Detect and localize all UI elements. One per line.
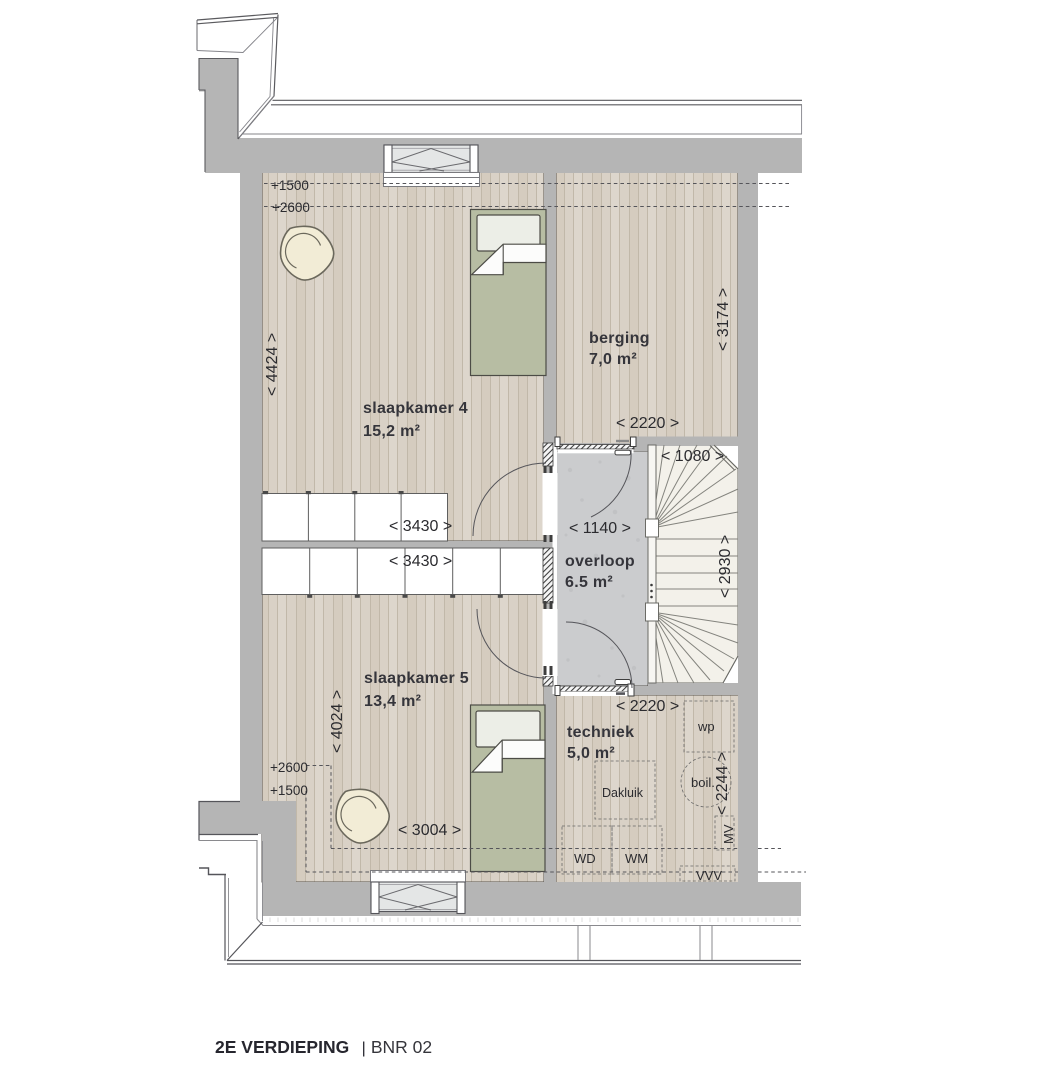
svg-text:< 4024 >: < 4024 >: [329, 690, 346, 753]
svg-text:2E VERDIEPING |BNR 02: 2E VERDIEPING |BNR 02: [215, 1037, 432, 1057]
svg-text:WD: WD: [574, 851, 596, 866]
svg-text:< 2930 >: < 2930 >: [717, 535, 734, 598]
svg-text:13,4 m²: 13,4 m²: [364, 693, 421, 710]
svg-text:Dakluik: Dakluik: [602, 786, 644, 800]
svg-text:MV: MV: [721, 824, 736, 844]
svg-text:+2600: +2600: [270, 760, 308, 775]
svg-text:< 4424 >: < 4424 >: [264, 333, 281, 396]
svg-text:berging: berging: [589, 330, 650, 347]
svg-text:7,0 m²: 7,0 m²: [589, 351, 637, 368]
svg-text:< 3430 >: < 3430 >: [389, 518, 452, 535]
svg-text:wp: wp: [697, 719, 715, 734]
svg-text:techniek: techniek: [567, 724, 634, 741]
svg-text:< 3174 >: < 3174 >: [715, 288, 732, 351]
svg-text:+2600: +2600: [272, 200, 310, 215]
svg-text:6.5 m²: 6.5 m²: [565, 574, 613, 591]
svg-text:< 1080 >: < 1080 >: [661, 448, 724, 465]
svg-text:< 3004 >: < 3004 >: [398, 822, 461, 839]
svg-text:slaapkamer 5: slaapkamer 5: [364, 670, 469, 687]
svg-text:slaapkamer 4: slaapkamer 4: [363, 400, 468, 417]
svg-text:< 2220 >: < 2220 >: [616, 415, 679, 432]
svg-text:+1500: +1500: [270, 783, 308, 798]
svg-text:+1500: +1500: [271, 178, 309, 193]
svg-text:< 2220 >: < 2220 >: [616, 698, 679, 715]
svg-text:15,2 m²: 15,2 m²: [363, 423, 420, 440]
svg-text:boil.: boil.: [691, 775, 715, 790]
svg-text:VVV: VVV: [696, 868, 722, 883]
svg-text:< 3430 >: < 3430 >: [389, 553, 452, 570]
svg-text:overloop: overloop: [565, 553, 635, 570]
svg-text:< 1140 >: < 1140 >: [569, 520, 631, 537]
svg-text:5,0 m²: 5,0 m²: [567, 745, 615, 762]
svg-text:< 2244 >: < 2244 >: [714, 752, 731, 815]
svg-text:WM: WM: [625, 851, 648, 866]
